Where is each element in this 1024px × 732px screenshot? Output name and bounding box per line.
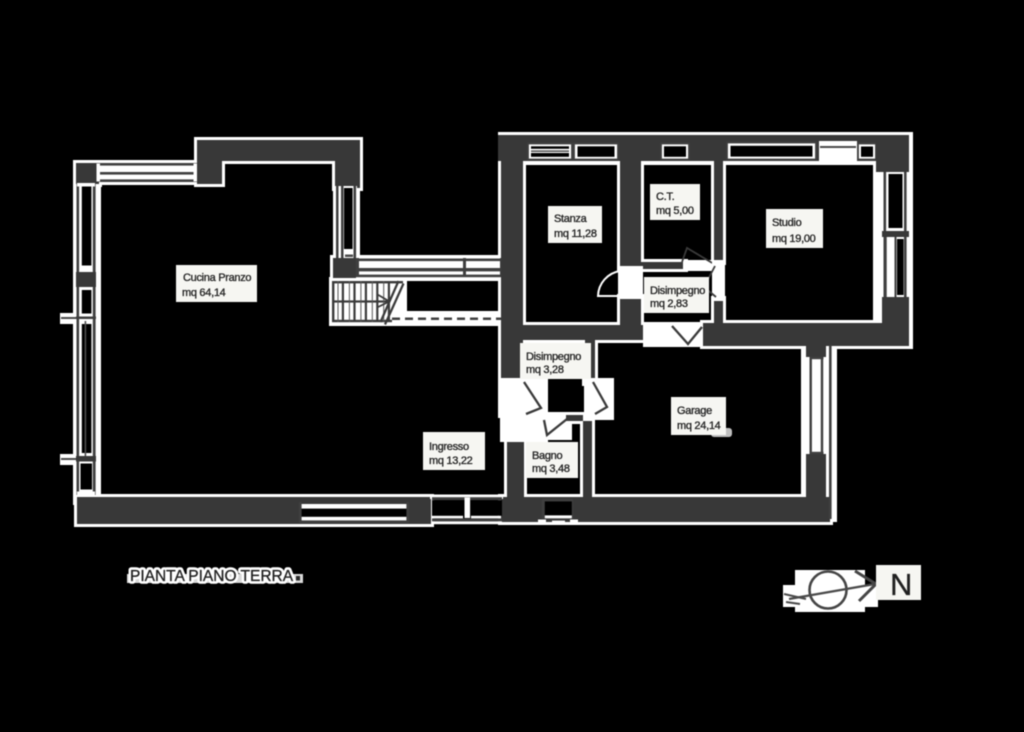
svg-text:Bagno: Bagno (532, 450, 562, 462)
svg-text:mq 3,48: mq 3,48 (532, 463, 570, 475)
svg-text:N: N (890, 567, 912, 602)
svg-text:Cucina Pranzo: Cucina Pranzo (183, 272, 251, 284)
svg-text:mq 3,28: mq 3,28 (526, 364, 564, 376)
svg-text:Disimpegno: Disimpegno (526, 351, 581, 363)
svg-text:mq 2,83: mq 2,83 (650, 298, 688, 310)
svg-text:Ingresso: Ingresso (429, 441, 469, 453)
svg-text:mq 19,00: mq 19,00 (772, 233, 816, 245)
svg-text:mq 11,28: mq 11,28 (554, 228, 597, 240)
svg-text:mq 13,22: mq 13,22 (429, 455, 473, 467)
svg-text:mq 64,14: mq 64,14 (182, 287, 226, 299)
svg-text:Stanza: Stanza (554, 213, 588, 225)
svg-text:PIANTA PIANO TERRA: PIANTA PIANO TERRA (130, 568, 294, 585)
svg-text:C.T.: C.T. (656, 191, 675, 203)
svg-text:Disimpegno: Disimpegno (650, 285, 705, 297)
svg-text:Garage: Garage (677, 405, 712, 417)
svg-text:mq 5,00: mq 5,00 (656, 205, 694, 217)
svg-text:Studio: Studio (772, 217, 802, 229)
svg-text:mq 24,14: mq 24,14 (677, 420, 721, 432)
